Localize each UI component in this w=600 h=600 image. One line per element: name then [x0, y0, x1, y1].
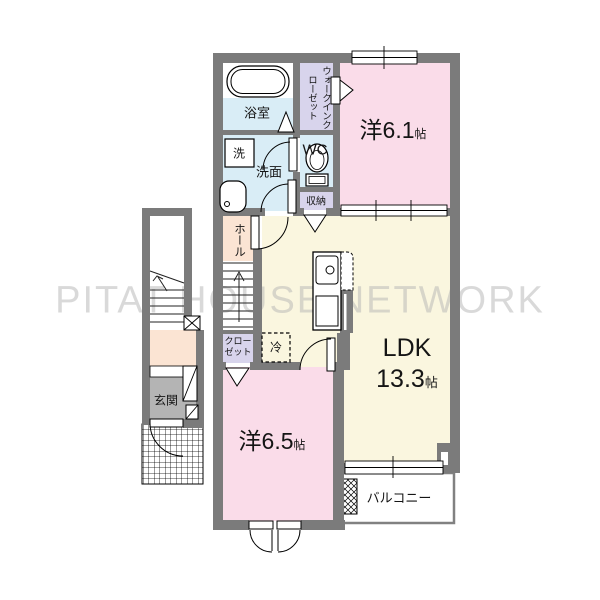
counter-dashed-extension [341, 252, 353, 290]
bathtub-icon [227, 66, 289, 97]
meter-box [184, 316, 200, 330]
bedroom2-label: 洋6.5帖 [239, 422, 306, 456]
closet-opening-arrow [226, 368, 249, 386]
stove-icon [316, 296, 338, 326]
sliding-door-bedroom1-ldk [341, 200, 447, 221]
bedroom1-label: 洋6.1帖 [360, 111, 427, 145]
balcony-label: バルコニー [367, 488, 432, 507]
bath-label: 浴室 [244, 103, 270, 122]
bath-folding-door [278, 112, 294, 132]
vanity-label: 洗面 [256, 162, 282, 181]
floorplan-svg [0, 0, 600, 600]
storage-opening-arrow [304, 215, 326, 232]
washbasin-icon [220, 181, 246, 212]
kitchen-wall-slit [344, 294, 347, 330]
entrance-step [150, 366, 183, 377]
floorplan-page: PITAT HOUSE NETWORK [0, 0, 600, 600]
hall-label: ホール [231, 217, 247, 263]
refrigerator-label: 冷 [270, 339, 282, 356]
shoe-cabinet-icon [183, 366, 197, 401]
hall-ldk-door [251, 216, 288, 249]
entrance-small-cabinet-icon [186, 405, 198, 419]
stairs-exterior-arrow [153, 276, 163, 281]
ldk-label: LDK 13.3帖 [376, 333, 438, 396]
bedroom2-door [300, 338, 335, 371]
washer-label: 洗 [233, 145, 245, 162]
closet-label: クローゼット [221, 336, 255, 358]
faucet-icon [326, 266, 334, 274]
bedroom2-french-doors [249, 521, 301, 552]
stairs-interior [223, 263, 253, 327]
storage-label: 収納 [306, 193, 326, 208]
stairs-exterior [150, 271, 184, 322]
entrance-label: 玄関 [154, 392, 178, 409]
walk-in-closet-opening-arrow [331, 77, 353, 104]
vanity-door [261, 180, 296, 213]
wc-label: WC [303, 142, 328, 159]
stairs-break-line [150, 271, 184, 283]
walk-in-closet-label: ウォークインクローゼット [301, 64, 332, 130]
window-bedroom1-top [352, 46, 417, 69]
